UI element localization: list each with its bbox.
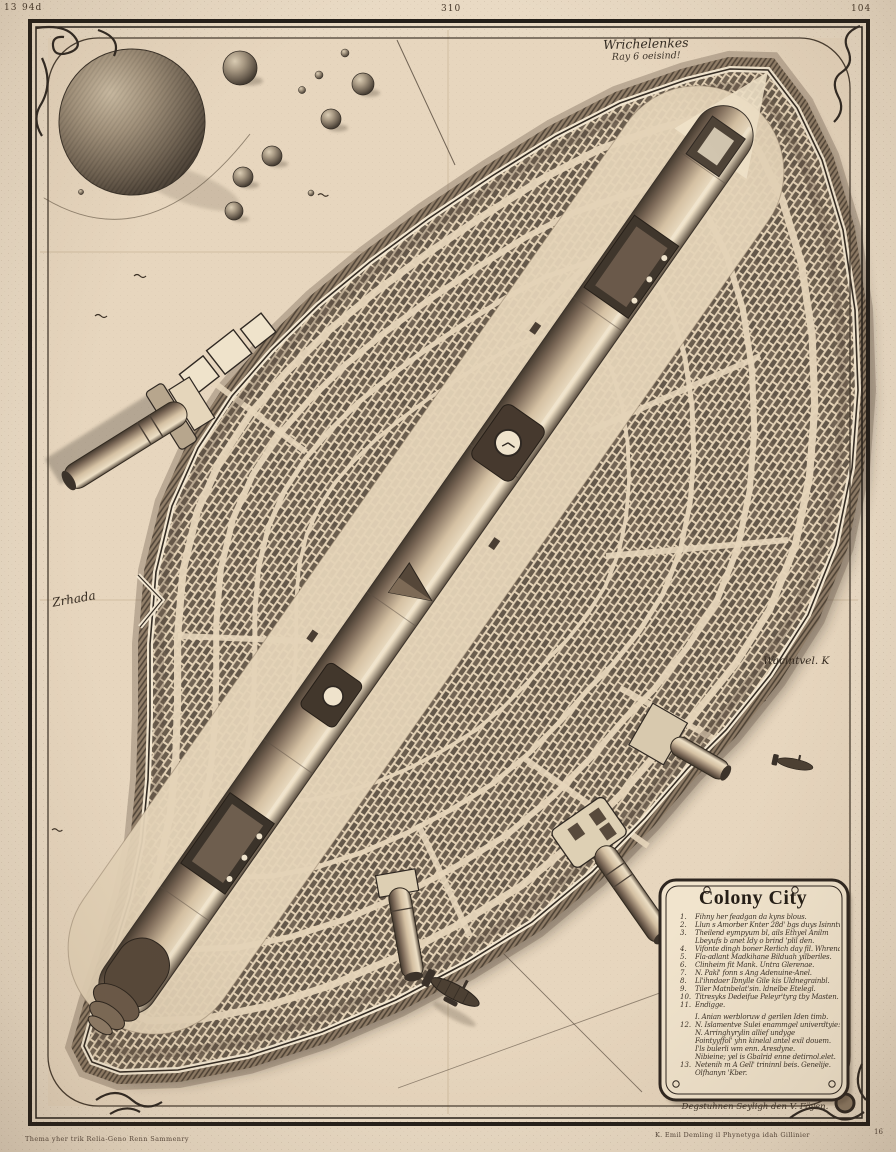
legend-text: I'ls bulerli wm enn. Aresdyne. — [695, 1045, 840, 1053]
legend-text: N. Arringhyrylin allief undyge — [695, 1029, 840, 1037]
cartouche-title: Colony City — [664, 887, 842, 910]
map-label-east: Wacintvel. K — [763, 655, 829, 667]
legend-num — [680, 1037, 695, 1045]
legend-num — [680, 1045, 695, 1053]
legend-text: Ll'ihndaer Ibnylle Gile kis Uldnegrainbl… — [695, 977, 840, 985]
legend-row: Nibieine; yel is Gbalrid enne detirnol.e… — [680, 1053, 840, 1061]
legend-row: 7.N. Pakl' fonn s Ang Adenuine-Anel. — [680, 969, 840, 977]
legend-text: Endigge. — [695, 1001, 840, 1009]
legend-text: Fihny her feadgan da kyns blous. — [695, 913, 840, 921]
map-note-top: Wrichelenkes Ray 6 oeisind! — [576, 34, 717, 64]
plate-mark-left: 94d — [22, 3, 42, 13]
legend-text: Vifonte dingh boner Rerlich day fil. Whr… — [695, 945, 840, 953]
plate-mark-center: 310 — [441, 4, 461, 14]
legend-row: 11.Endigge. — [680, 1001, 840, 1009]
legend-num: 5. — [680, 953, 695, 961]
legend-row: 2.Llun s Amorber Knter 28d' bgs duys Isi… — [680, 921, 840, 929]
legend-num: 8. — [680, 977, 695, 985]
legend-num: 4. — [680, 945, 695, 953]
legend-text: Llun s Amorber Knter 28d' bgs duys Isinn… — [695, 921, 840, 929]
legend-row: 10.Titresyks Dedeifue Peleyr'tyrg tby Ma… — [680, 993, 840, 1001]
legend-row: I'ls bulerli wm enn. Aresdyne. — [680, 1045, 840, 1053]
legend-num: 9. — [680, 985, 695, 993]
legend-row: I. Anian werbloruw d gerilen Iden timb. — [680, 1013, 840, 1021]
legend-num: 2. — [680, 921, 695, 929]
legend-row: N. Arringhyrylin allief undyge — [680, 1029, 840, 1037]
plate-mark-right: 104 — [851, 4, 871, 14]
legend-text: Olfhanyn 'Kber. — [695, 1069, 840, 1077]
legend-row: Olfhanyn 'Kber. — [680, 1069, 840, 1077]
legend-row: Fointyyffol' yhn kinelal antel exil doue… — [680, 1037, 840, 1045]
legend-num: 11. — [680, 1001, 695, 1009]
legend-num — [680, 937, 695, 945]
legend-text: Tiler Matnbelat'sin. ldnelbe Etelegl. — [695, 985, 840, 993]
margin-note-bottom-right: K. Emil Demling il Phynetyga idah Gillin… — [655, 1131, 810, 1139]
cartouche: Colony City 1.Fihny her feadgan da kyns … — [658, 878, 848, 1102]
legend-row: 8.Ll'ihndaer Ibnylle Gile kis Uldnegrain… — [680, 977, 840, 985]
legend-text: Titresyks Dedeifue Peleyr'tyrg tby Maste… — [695, 993, 840, 1001]
legend-text: Clinheim fit Mank. Untra Glerenae. — [695, 961, 840, 969]
legend-list: 1.Fihny her feadgan da kyns blous. 2.Llu… — [658, 911, 848, 1077]
legend-num: 12. — [680, 1021, 695, 1029]
legend-row: 3.Theilend eympyum bl, ails Ethyel Anilm — [680, 929, 840, 937]
legend-row: 1.Fihny her feadgan da kyns blous. — [680, 913, 840, 921]
legend-text: Netenih m A Gell' trininnl beis. Genelij… — [695, 1061, 840, 1069]
engraved-map-page: 13 94d 310 104 Wrichelenkes Ray 6 oeisin… — [0, 0, 896, 1152]
signature-line: Degstuhnen Seyligh den V. Föyen. — [648, 1102, 862, 1112]
legend-num: 13. — [680, 1061, 695, 1069]
legend-text: N. Islamentve Sulei enammgel univerdtyie… — [695, 1021, 840, 1029]
legend-text: I. Anian werbloruw d gerilen Iden timb. — [695, 1013, 840, 1021]
legend-num — [680, 1069, 695, 1077]
legend-num: 7. — [680, 969, 695, 977]
legend-num — [680, 1013, 695, 1021]
legend-row: 13.Netenih m A Gell' trininnl beis. Gene… — [680, 1061, 840, 1069]
legend-num — [680, 1029, 695, 1037]
legend-text: Fointyyffol' yhn kinelal antel exil doue… — [695, 1037, 840, 1045]
legend-row: Lbeyufs b anet Idy o brind 'plil den. — [680, 937, 840, 945]
legend-row: 5.Fla-adlant Madkihane Bilduah yilberile… — [680, 953, 840, 961]
legend-num: 6. — [680, 961, 695, 969]
legend-num: 10. — [680, 993, 695, 1001]
legend-row: 4.Vifonte dingh boner Rerlich day fil. W… — [680, 945, 840, 953]
legend-num — [680, 1053, 695, 1061]
legend-row: 6.Clinheim fit Mank. Untra Glerenae. — [680, 961, 840, 969]
margin-note-bottom-left: Thema yher trik Relia-Geno Renn Sammenry — [25, 1135, 189, 1143]
planet-hatching — [59, 49, 205, 195]
legend-text: Lbeyufs b anet Idy o brind 'plil den. — [695, 937, 840, 945]
margin-note-bottom-right-mark: 16 — [874, 1128, 883, 1136]
legend-num: 3. — [680, 929, 695, 937]
legend-text: Nibieine; yel is Gbalrid enne detirnol.e… — [695, 1053, 840, 1061]
legend-text: Theilend eympyum bl, ails Ethyel Anilm — [695, 929, 840, 937]
legend-row: 9.Tiler Matnbelat'sin. ldnelbe Etelegl. — [680, 985, 840, 993]
legend-num: 1. — [680, 913, 695, 921]
legend-row: 12.N. Islamentve Sulei enammgel univerdt… — [680, 1021, 840, 1029]
legend-text: Fla-adlant Madkihane Bilduah yilberiles. — [695, 953, 840, 961]
legend-text: N. Pakl' fonn s Ang Adenuine-Anel. — [695, 969, 840, 977]
plate-mark-far-left: 13 — [4, 3, 17, 13]
